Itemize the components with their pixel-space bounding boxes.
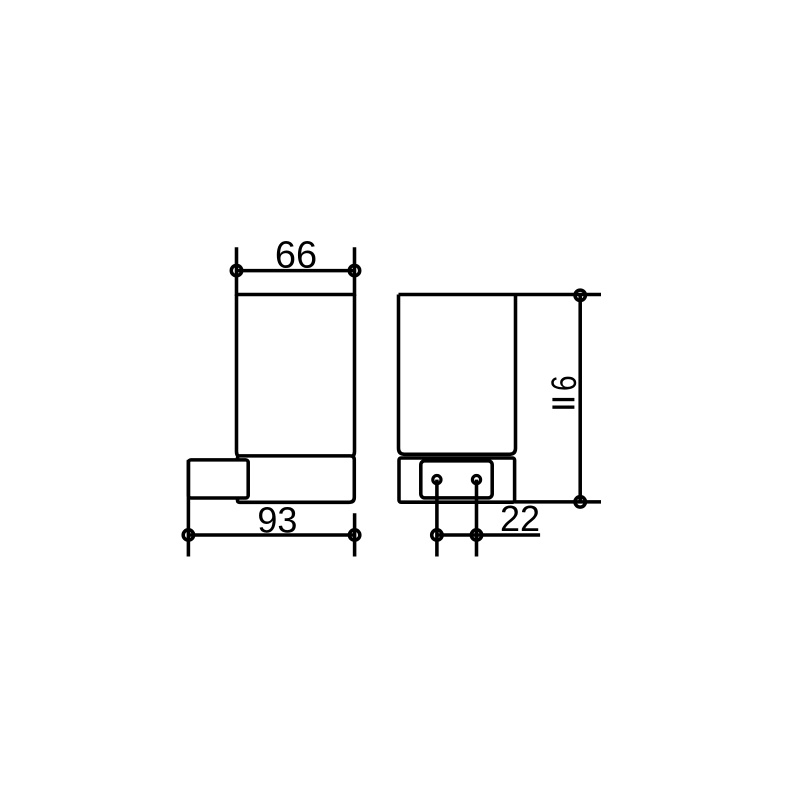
svg-text:22: 22	[500, 498, 540, 539]
svg-text:66: 66	[275, 235, 317, 277]
svg-text:93: 93	[257, 499, 297, 540]
svg-text:6: 6	[544, 375, 584, 391]
